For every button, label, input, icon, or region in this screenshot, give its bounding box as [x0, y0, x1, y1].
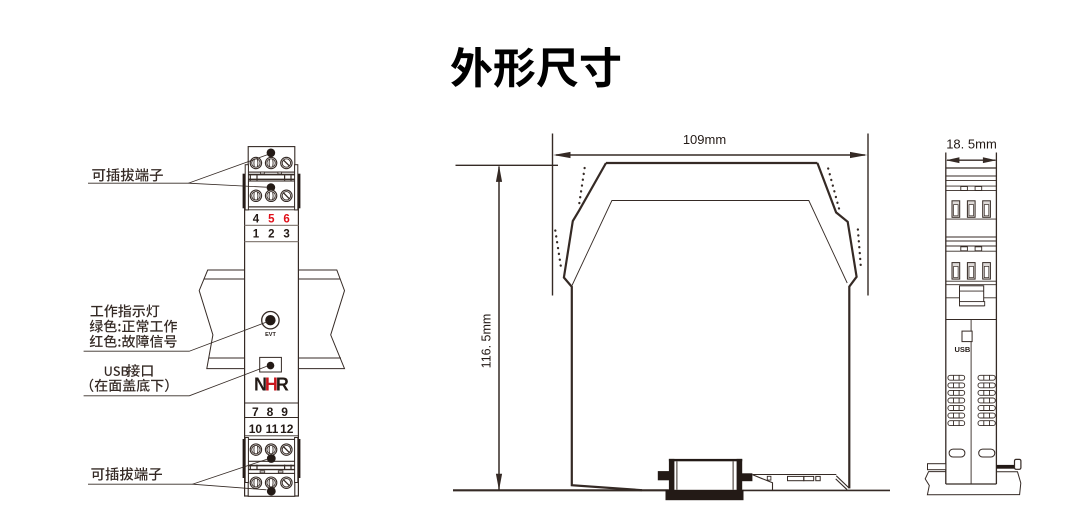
svg-text:5: 5 [268, 214, 275, 226]
svg-text:18. 5mm: 18. 5mm [946, 137, 997, 152]
svg-text:6: 6 [283, 214, 289, 226]
svg-text:3: 3 [283, 228, 289, 240]
svg-text:8: 8 [267, 405, 274, 419]
svg-text:USB: USB [955, 345, 971, 354]
svg-text:12: 12 [280, 422, 294, 436]
svg-text:10: 10 [249, 422, 263, 436]
svg-text:NHR: NHR [254, 374, 289, 394]
svg-text:4: 4 [253, 214, 260, 226]
svg-text:EVT: EVT [265, 332, 276, 338]
svg-text:7: 7 [252, 405, 259, 419]
svg-text:2: 2 [268, 228, 274, 240]
svg-text:9: 9 [281, 405, 288, 419]
svg-text:109mm: 109mm [683, 132, 726, 147]
svg-text:116. 5mm: 116. 5mm [479, 314, 493, 369]
svg-text:1: 1 [253, 228, 260, 240]
svg-text:11: 11 [266, 422, 279, 436]
